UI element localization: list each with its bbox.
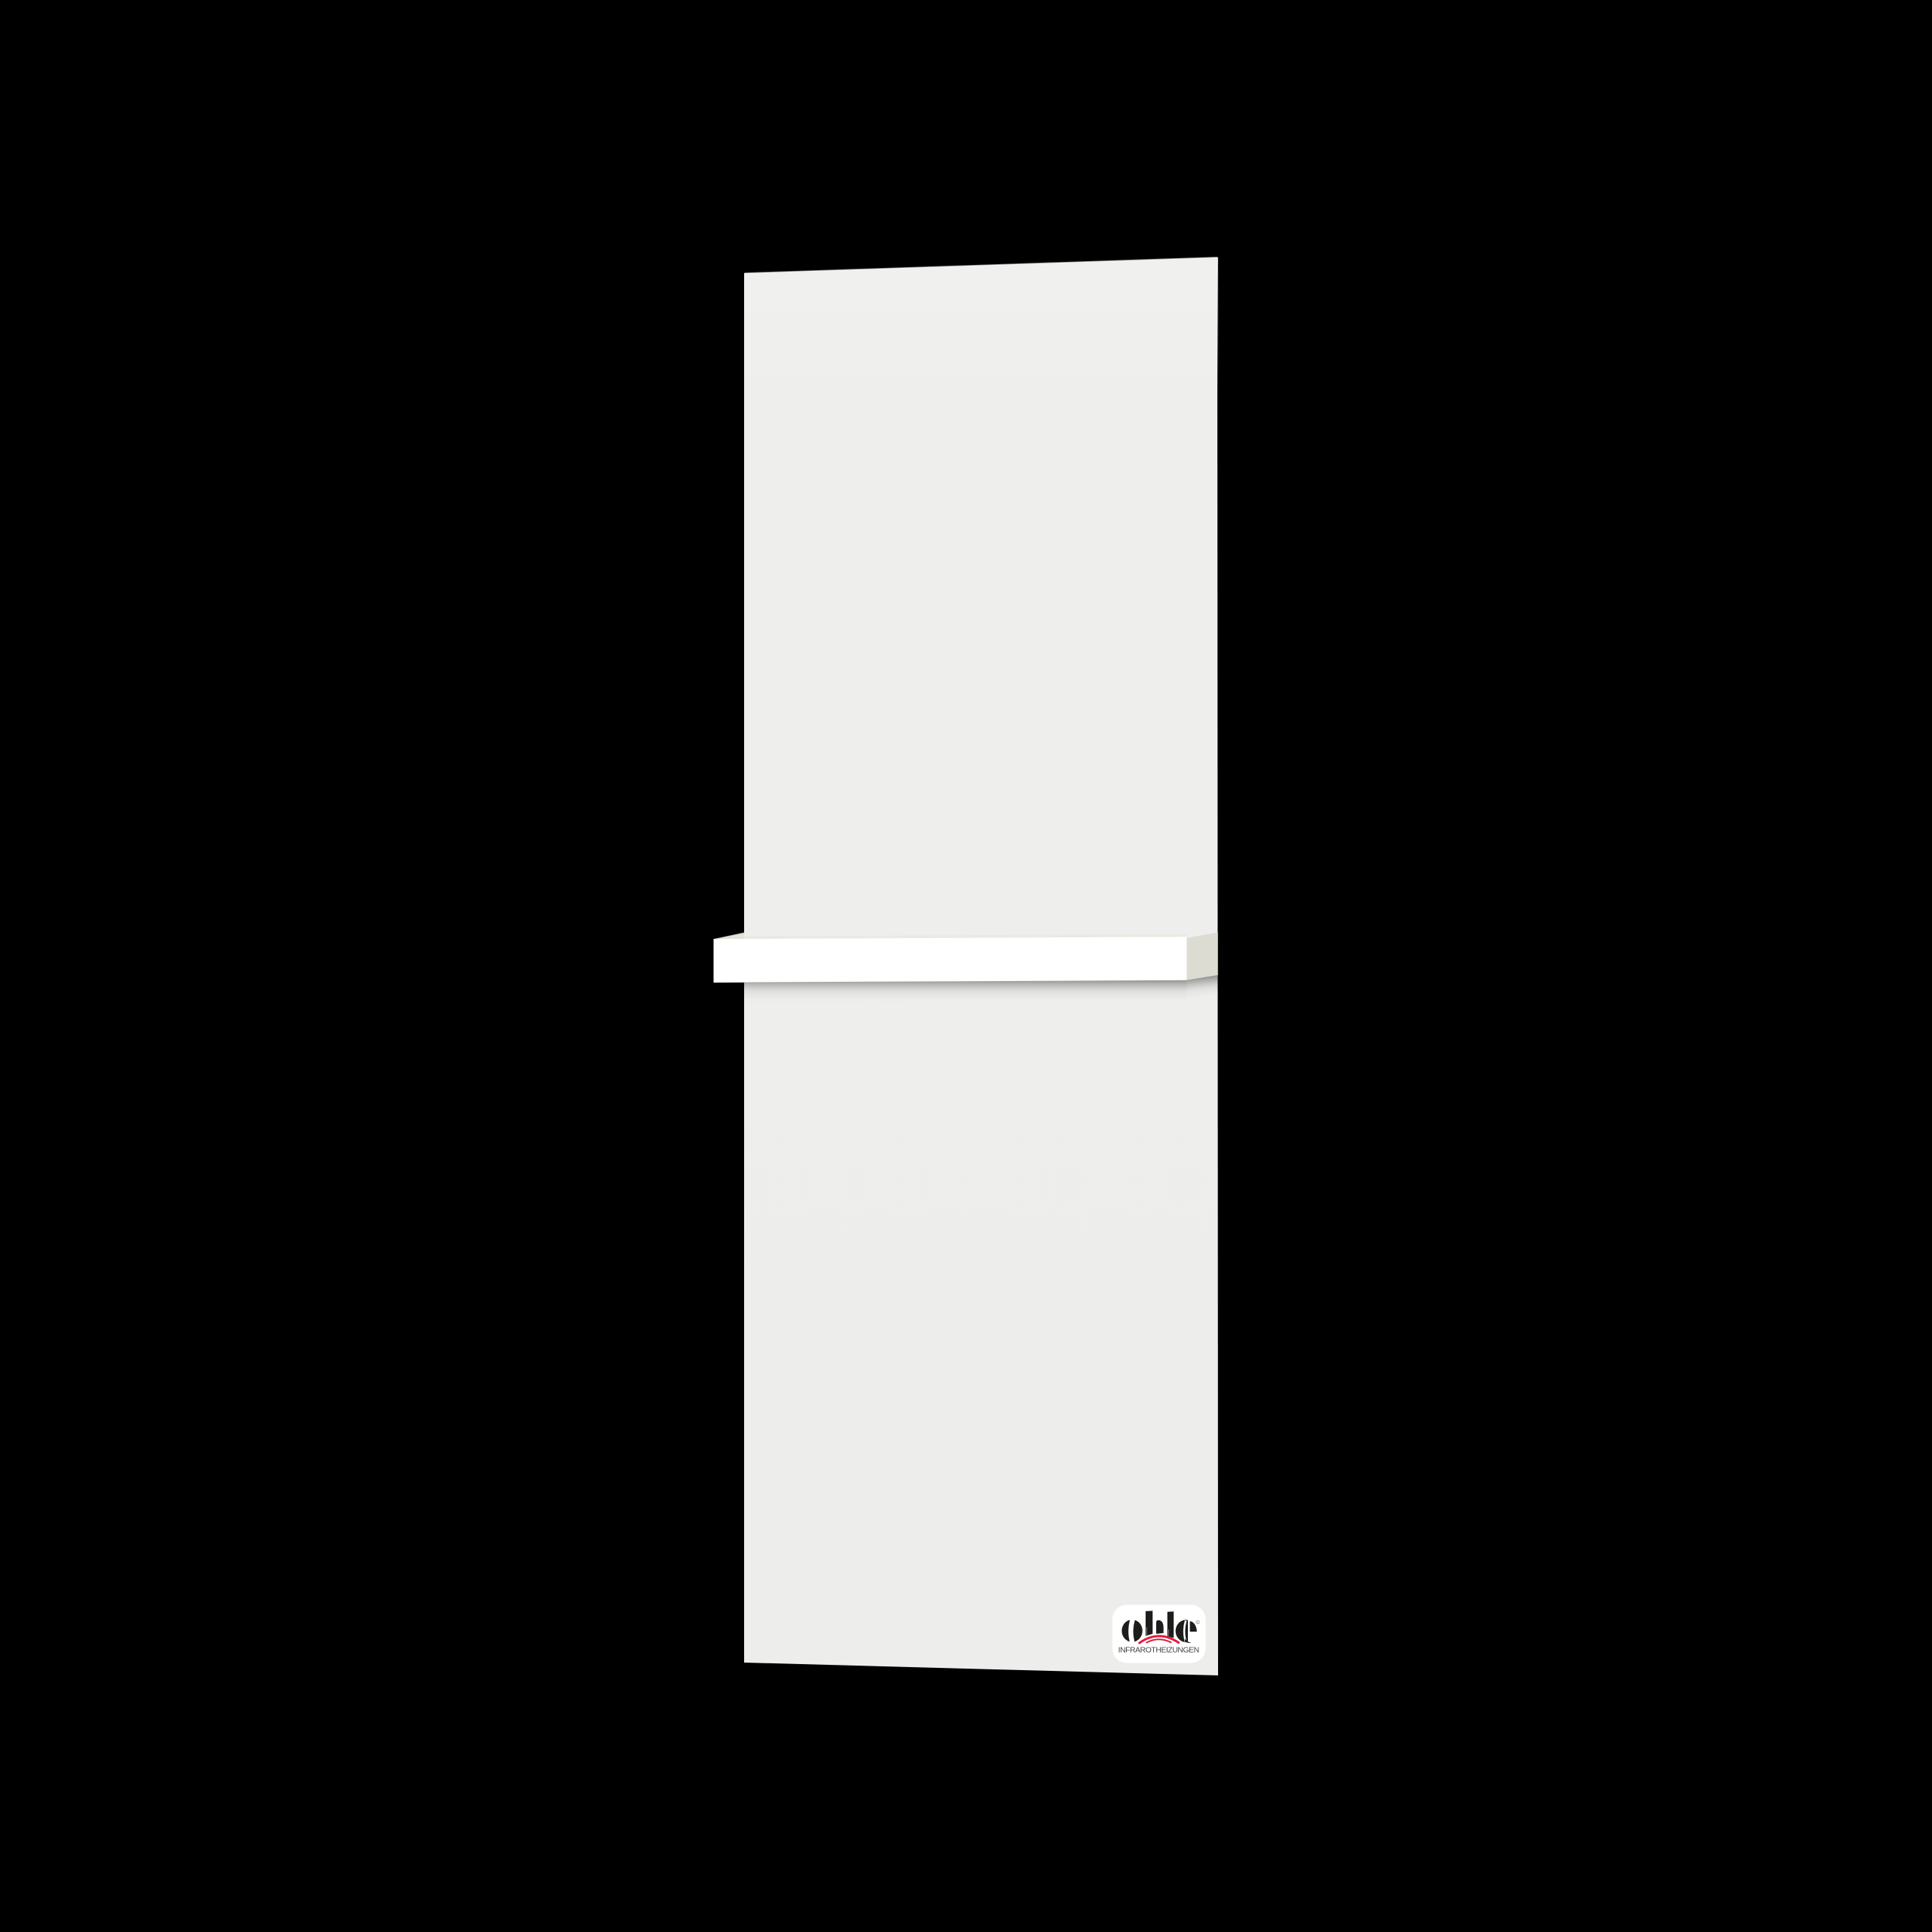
svg-text:INFRAROTHEIZUNGEN: INFRAROTHEIZUNGEN <box>1118 1646 1199 1654</box>
